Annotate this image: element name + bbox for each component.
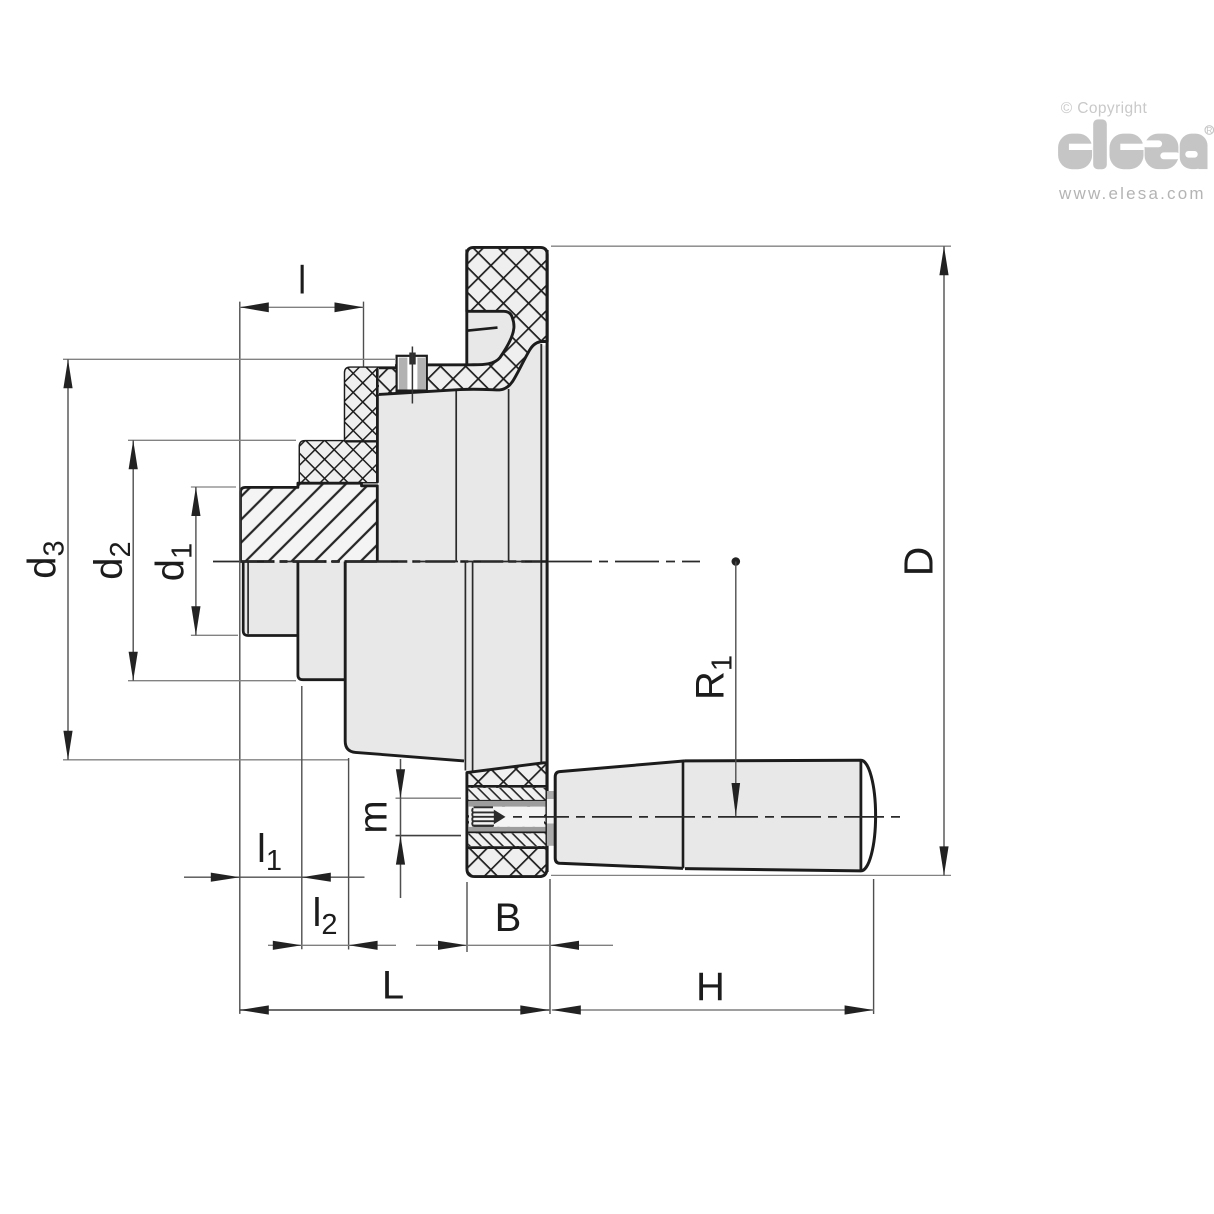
svg-text:m: m [352, 800, 396, 833]
svg-text:© Copyright: © Copyright [1061, 100, 1148, 117]
svg-text:R: R [1206, 125, 1212, 135]
svg-text:H: H [696, 965, 725, 1009]
svg-text:L: L [382, 964, 404, 1008]
svg-text:B: B [495, 896, 522, 940]
svg-text:D: D [896, 547, 942, 577]
svg-text:www.elesa.com: www.elesa.com [1058, 184, 1206, 203]
